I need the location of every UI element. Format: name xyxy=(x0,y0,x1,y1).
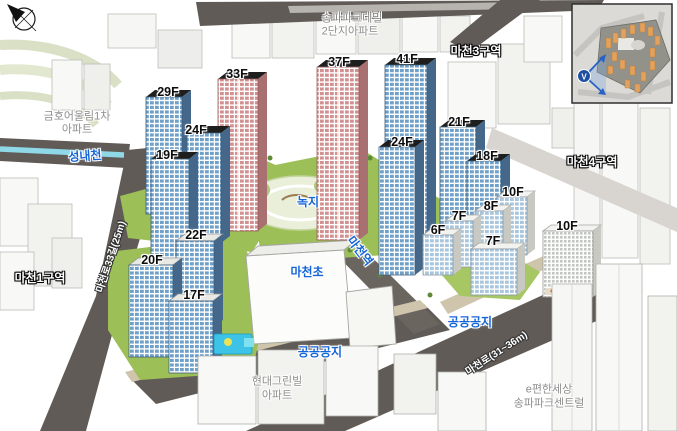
tower-37f xyxy=(317,60,368,240)
inset-key-map: V xyxy=(572,4,672,103)
tower-24f-center xyxy=(379,140,424,275)
lowrise-6f xyxy=(423,229,461,275)
water-feature xyxy=(214,334,254,354)
school-building xyxy=(246,240,396,348)
north-compass-icon xyxy=(7,4,36,31)
view-direction-marker: V xyxy=(581,73,587,82)
aerial-rendering: V 29F33F37F41F24F19F24F21F18F10F8F7F6F7F… xyxy=(0,0,677,431)
lowrise-7f-b xyxy=(471,243,525,295)
masterplan-3d-scene: V xyxy=(0,0,677,431)
